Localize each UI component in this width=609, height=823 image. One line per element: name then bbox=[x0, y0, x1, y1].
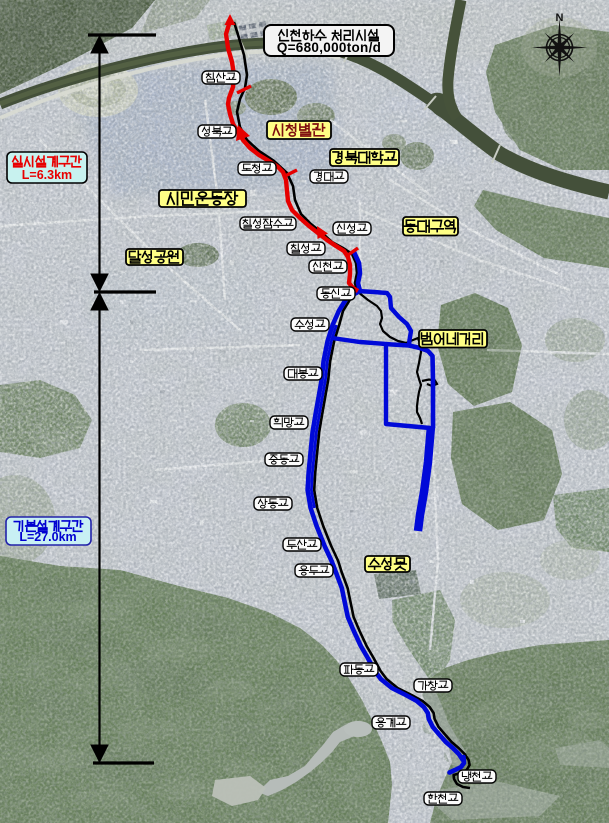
svg-text:N: N bbox=[556, 12, 564, 24]
svg-text:Q=680,000ton/d: Q=680,000ton/d bbox=[277, 40, 381, 55]
svg-text:L=27.0km: L=27.0km bbox=[19, 530, 76, 544]
svg-text:L=6.3km: L=6.3km bbox=[22, 168, 72, 182]
